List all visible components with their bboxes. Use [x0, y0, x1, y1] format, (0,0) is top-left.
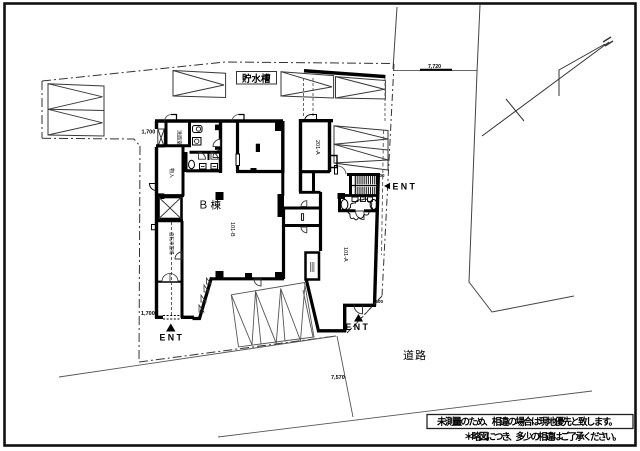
svg-text:ENT: ENT [160, 333, 185, 343]
svg-text:7,570: 7,570 [331, 375, 345, 381]
svg-text:600: 600 [377, 173, 385, 178]
svg-text:未測量のため、相違の場合は現地優先と致します。: 未測量のため、相違の場合は現地優先と致します。 [436, 416, 618, 428]
svg-text:7,720: 7,720 [428, 64, 441, 70]
svg-text:道路: 道路 [403, 348, 427, 362]
svg-text:＊略図につき、多少の相違はご了承ください。: ＊略図につき、多少の相違はご了承ください。 [464, 431, 622, 443]
svg-text:101-B: 101-B [229, 222, 235, 237]
svg-text:ENT: ENT [393, 182, 418, 192]
svg-text:1,700: 1,700 [142, 130, 156, 136]
svg-text:600: 600 [376, 299, 384, 304]
svg-text:1,700: 1,700 [141, 311, 155, 317]
svg-text:201-A: 201-A [314, 140, 320, 155]
svg-text:Ｂ棟: Ｂ棟 [198, 199, 223, 212]
svg-text:洗面室: 洗面室 [176, 130, 183, 145]
svg-text:101-A: 101-A [342, 247, 348, 262]
svg-text:貯水槽: 貯水槽 [242, 73, 271, 85]
svg-text:物入: 物入 [168, 168, 175, 178]
svg-text:ENT: ENT [346, 322, 371, 332]
